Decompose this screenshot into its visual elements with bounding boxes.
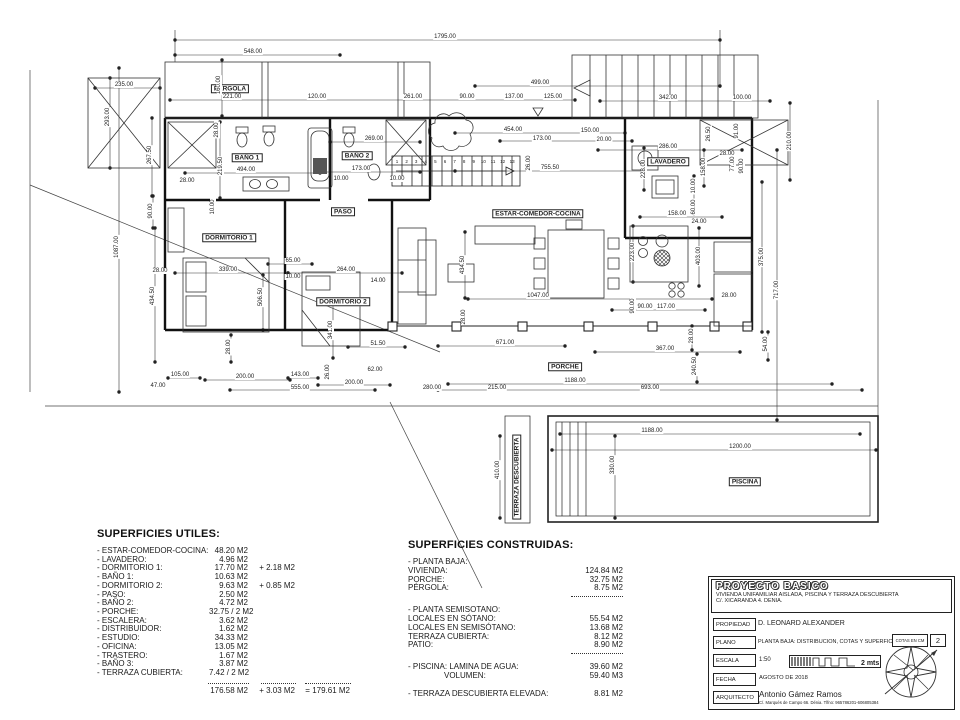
utiles-title: SUPERFICIES UTILES: (97, 528, 457, 540)
hatched-boxes (88, 78, 788, 168)
surface-row: - PORCHE:32.75 / 2 M2 (97, 608, 457, 617)
surface-row: PATIO:8.90 M2 (408, 641, 623, 650)
surface-row: - PASO:2.50 M2 (97, 591, 457, 600)
surface-row: - TERRAZA DESCUBIERTA ELEVADA:8.81 M2 (408, 690, 623, 699)
fecha-label: FECHA (713, 673, 756, 686)
project-address: C/. XICARANDA 4. DENIA. (716, 598, 947, 604)
construidas-title: SUPERFICIES CONSTRUIDAS: (408, 539, 623, 551)
construidas-rows: - PLANTA BAJA:VIVIENDA:124.84 M2PORCHE:3… (408, 558, 623, 699)
drawing-sheet: PÉRGOLABAÑO 1BAÑO 2PASOESTAR-COMEDOR-COC… (0, 0, 960, 720)
pergola (165, 55, 758, 118)
surface-row: TERRAZA CUBIERTA:8.12 M2 (408, 633, 623, 642)
title-block: PROYECTO BASICO VIVIENDA UNIFAMILIAR AIS… (708, 576, 955, 710)
dotted-divider (571, 596, 623, 597)
scale-unit-text: 2 mts (861, 660, 879, 667)
surface-row: - BAÑO 2:4.72 M2 (97, 599, 457, 608)
dotted-divider (571, 653, 623, 654)
surface-row: VOLUMEN:59.40 M3 (408, 672, 623, 681)
furniture (168, 126, 752, 346)
surface-row: - DISTRIBUIDOR:1.62 M2 (97, 625, 457, 634)
arquitecto-label: ARQUITECTO (713, 691, 759, 704)
propiedad-label: PROPIEDAD (713, 618, 756, 631)
utiles-rows: - ESTAR-COMEDOR-COCINA:48.20 M2- LAVADER… (97, 547, 457, 678)
surface-row: PÉRGOLA:8.75 M2 (408, 584, 623, 593)
plano-label: PLANO (713, 636, 756, 649)
title-block-header: PROYECTO BASICO VIVIENDA UNIFAMILIAR AIS… (711, 579, 952, 613)
arquitecto-info: C/. Marqués de Campo 66. Dénia. Tlfno: 9… (759, 700, 879, 705)
surface-group: - TERRAZA DESCUBIERTA ELEVADA:8.81 M2 (408, 690, 623, 699)
escala-label: ESCALA (713, 654, 756, 667)
totals-separator (97, 681, 457, 687)
surface-row: - OFICINA:13.05 M2 (97, 643, 457, 652)
plano-value: PLANTA BAJA: DISTRIBUCION, COTAS Y SUPER… (758, 639, 901, 645)
project-title: PROYECTO BASICO (716, 581, 947, 592)
fecha-value: AGOSTO DE 2018 (759, 675, 808, 681)
porch-columns (388, 322, 752, 331)
pool (505, 416, 878, 523)
staircase (392, 156, 520, 186)
surface-row: - TRASTERO:1.67 M2 (97, 652, 457, 661)
surface-row: - ESTUDIO:34.33 M2 (97, 634, 457, 643)
arquitecto-name: Antonio Gámez Ramos (759, 690, 842, 699)
escala-value: 1:50 (759, 657, 771, 663)
surface-row: - TERRAZA CUBIERTA:7.42 / 2 M2 (97, 669, 457, 678)
surface-row: - ESTAR-COMEDOR-COCINA:48.20 M2 (97, 547, 457, 556)
surface-row: - DORMITORIO 2:9.63 M2+ 0.85 M2 (97, 582, 457, 591)
propiedad-value: D. LEONARD ALEXANDER (758, 620, 845, 627)
surface-group: - PLANTA SEMISOTANO:LOCALES EN SÓTANO:55… (408, 606, 623, 654)
utiles-total-extra: + 3.03 M2 (248, 687, 295, 696)
dimension-lines (95, 40, 876, 518)
surface-row: - DORMITORIO 1:17.70 M2+ 2.18 M2 (97, 564, 457, 573)
scale-bar: 2 mts (789, 655, 881, 668)
superficies-construidas-table: SUPERFICIES CONSTRUIDAS: - PLANTA BAJA:V… (408, 539, 623, 708)
utiles-totals-row: 176.58 M2 + 3.03 M2 = 179.61 M2 (97, 687, 457, 696)
terrace-strip (505, 416, 530, 523)
utiles-total-main: 176.58 M2 (209, 687, 248, 696)
entry-arrow-icon (533, 108, 543, 116)
superficies-utiles-table: SUPERFICIES UTILES: - ESTAR-COMEDOR-COCI… (97, 528, 457, 696)
surface-group: - PISCINA: LAMINA DE AGUA:39.60 M2VOLUME… (408, 663, 623, 681)
surface-group: - PLANTA BAJA:VIVIENDA:124.84 M2PORCHE:3… (408, 558, 623, 597)
utiles-total-result: = 179.61 M2 (295, 687, 350, 696)
compass-rose-icon (881, 644, 943, 702)
